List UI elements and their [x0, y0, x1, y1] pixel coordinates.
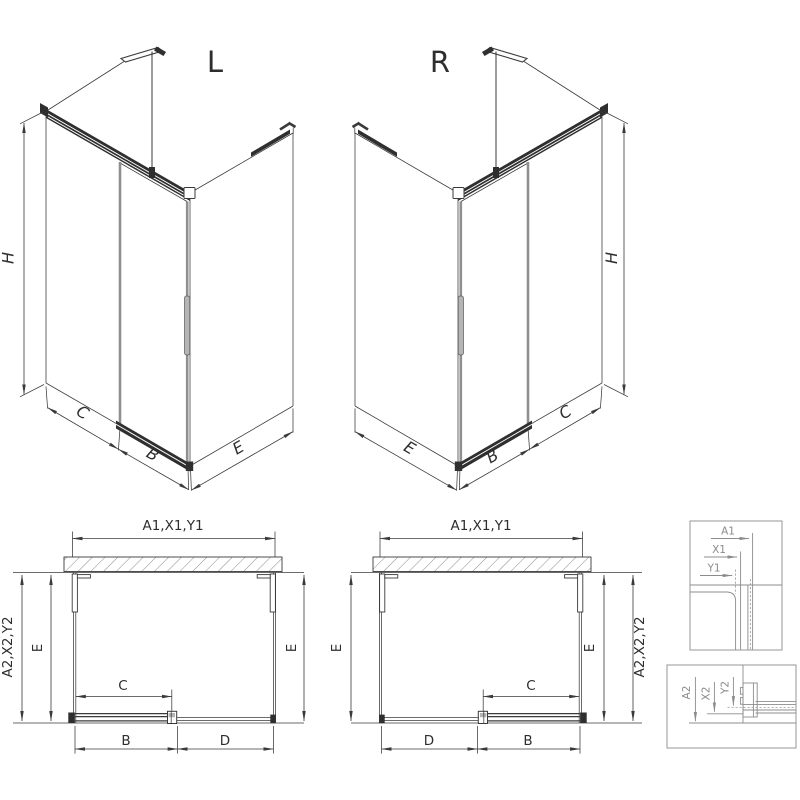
dim-label-a1x1y1: A1,X1,Y1 — [142, 518, 203, 534]
iso-view-right-labels: R H C B E — [401, 45, 621, 467]
dim-label-x2: X2 — [701, 687, 713, 701]
dim-label-e-left: E — [30, 644, 46, 653]
technical-drawing-shower-enclosure: L H C B E R H C B E A1,X1,Y1 A2,X2,Y2 E … — [0, 0, 800, 800]
view-title-right: R — [430, 45, 450, 79]
detail-top-section-geometry — [690, 579, 782, 650]
dim-label-d: D — [220, 733, 230, 749]
view-title-left: L — [207, 45, 223, 79]
dim-label-a2x2y2: A2,X2,Y2 — [632, 616, 648, 677]
plan-view-right-labels: A1,X1,Y1 E E A2,X2,Y2 C D B — [329, 518, 648, 749]
dim-label-a1x1y1: A1,X1,Y1 — [450, 518, 511, 534]
dim-label-e-right: E — [284, 644, 300, 653]
dim-label-b: B — [483, 445, 502, 467]
detail-box-top: A1 X1 Y1 — [690, 521, 782, 650]
detail-box-bottom: A2 X2 Y2 — [667, 665, 796, 748]
wall-hatch-right-plan — [373, 557, 591, 572]
dim-label-e-right: E — [582, 644, 598, 653]
dim-label-b: B — [121, 733, 130, 749]
dim-label-e: E — [401, 437, 420, 459]
dim-label-c: C — [118, 678, 127, 694]
iso-view-left-geometry — [20, 47, 296, 491]
dim-label-c: C — [526, 678, 535, 694]
dim-label-b: B — [143, 443, 162, 465]
dim-label-e: E — [229, 437, 248, 459]
dim-label-x1: X1 — [712, 544, 726, 556]
plan-view-left-labels: A1,X1,Y1 A2,X2,Y2 E E C B D — [0, 518, 300, 749]
dim-label-a2: A2 — [681, 686, 693, 700]
dim-label-c: C — [73, 401, 93, 423]
dim-label-h: H — [0, 252, 18, 264]
dim-label-e-left: E — [329, 644, 345, 653]
wall-hatch-left-plan — [64, 557, 282, 572]
dim-label-y2: Y2 — [720, 681, 732, 695]
dim-label-a1: A1 — [721, 526, 735, 538]
dim-label-a2x2y2: A2,X2,Y2 — [0, 616, 16, 677]
dim-label-b: B — [523, 733, 532, 749]
dim-label-y1: Y1 — [706, 563, 720, 575]
dim-label-c: C — [556, 401, 576, 423]
iso-view-left-labels: L H C B E — [0, 45, 248, 465]
dim-label-h: H — [602, 252, 621, 264]
dim-label-d: D — [424, 733, 434, 749]
iso-view-right-geometry — [353, 47, 629, 491]
